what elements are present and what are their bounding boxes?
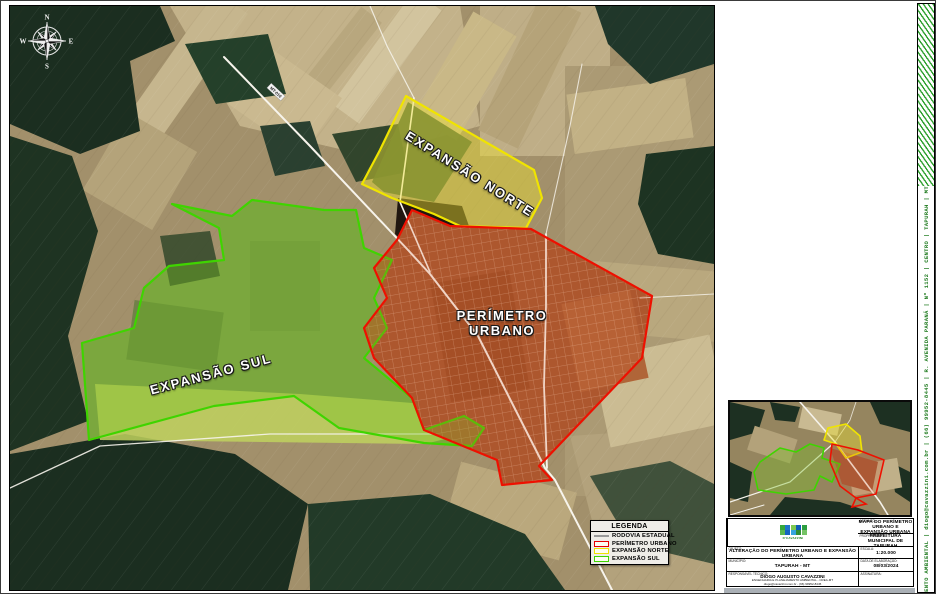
compass-w: W — [20, 38, 27, 46]
inset-location-map — [728, 400, 912, 517]
compass-e: E — [69, 38, 74, 46]
title-block-responsible-cell: RESPONSÁVEL TÉCNICO: DIOGO AUGUSTO CAVAZ… — [727, 571, 858, 586]
dcavazzini-logo: D'CAVAZZINI — [727, 519, 858, 546]
title-block-owner-cell: PROPRIETÁRIO: PREFEITURA MUNICIPAL DE TA… — [858, 533, 913, 546]
legend: LEGENDA RODOVIA ESTADUAL PERÍMETRO URBAN… — [590, 520, 669, 565]
road-line-symbol — [594, 535, 609, 538]
logo-label: D'CAVAZZINI — [783, 536, 804, 540]
company-side-strip: D'CAVAZZINI | ENGENHARIA E PLANEJAMENTO … — [917, 3, 935, 593]
label-perimetro-line1: PERÍMETRO — [457, 309, 548, 324]
title-block-object-cell: OBJETO: ALTERAÇÃO DO PERÍMETRO URBANO E … — [727, 546, 858, 558]
logo-mosaic-icon — [780, 525, 807, 536]
field-label: OBJETO: — [729, 548, 743, 551]
title-block-signature-cell: ASSINATURA: — [858, 571, 913, 586]
legend-item-perimetro: PERÍMETRO URBANO — [591, 539, 668, 547]
satellite-basemap: MT-010 — [10, 6, 714, 590]
red-outline-symbol — [594, 541, 609, 547]
title-block: ASSUNTO: MAPA DO PERÍMETRO URBANO E EXPA… — [726, 518, 914, 587]
legend-item-label: EXPANSÃO SUL — [612, 556, 660, 562]
legend-title: LEGENDA — [591, 521, 668, 532]
title-block-shadow — [724, 588, 915, 593]
field-label: ESCALA: — [861, 548, 874, 551]
company-info-text: D'CAVAZZINI | ENGENHARIA E PLANEJAMENTO … — [919, 186, 934, 593]
legend-item-label: RODOVIA ESTADUAL — [612, 533, 675, 539]
title-block-municipality-cell: MUNICÍPIO: TAPURAH - MT — [727, 558, 858, 571]
legend-item-label: EXPANSÃO NORTE — [612, 548, 669, 554]
green-outline-symbol — [594, 556, 609, 562]
map-sheet: MT-010 — [0, 0, 936, 594]
field-label: MUNICÍPIO: — [729, 560, 747, 563]
title-block-scale-cell: ESCALA: 1:20.000 — [858, 546, 913, 558]
yellow-outline-symbol — [594, 548, 609, 554]
field-label: RESPONSÁVEL TÉCNICO: — [729, 573, 769, 576]
field-label: ASSINATURA: — [861, 573, 882, 576]
main-map: MT-010 — [9, 5, 715, 591]
field-label: DATA DE ELABORAÇÃO: — [861, 560, 898, 563]
title-block-date-cell: DATA DE ELABORAÇÃO: 08/03/2024 — [858, 558, 913, 571]
legend-item-rodovia: RODOVIA ESTADUAL — [591, 532, 668, 540]
legend-item-sul: EXPANSÃO SUL — [591, 554, 668, 562]
title-block-subject-cell: ASSUNTO: MAPA DO PERÍMETRO URBANO E EXPA… — [858, 519, 913, 533]
field-label: ASSUNTO: — [860, 520, 876, 523]
label-perimetro-line2: URBANO — [457, 324, 548, 339]
municipality-value: TAPURAH - MT — [727, 559, 858, 571]
object-value: ALTERAÇÃO DO PERÍMETRO URBANO E EXPANSÃO… — [727, 547, 858, 558]
legend-item-norte: EXPANSÃO NORTE — [591, 547, 668, 555]
label-perimetro-urbano: PERÍMETRO URBANO — [457, 309, 548, 339]
hatch-pattern — [918, 4, 934, 186]
compass-s: S — [45, 63, 49, 71]
compass-n: N — [44, 14, 49, 22]
field-label: PROPRIETÁRIO: — [860, 535, 885, 538]
responsible-detail: diogo@cavazzini.com.br - (66) 99952-8445 — [764, 583, 822, 586]
legend-item-label: PERÍMETRO URBANO — [612, 541, 677, 547]
